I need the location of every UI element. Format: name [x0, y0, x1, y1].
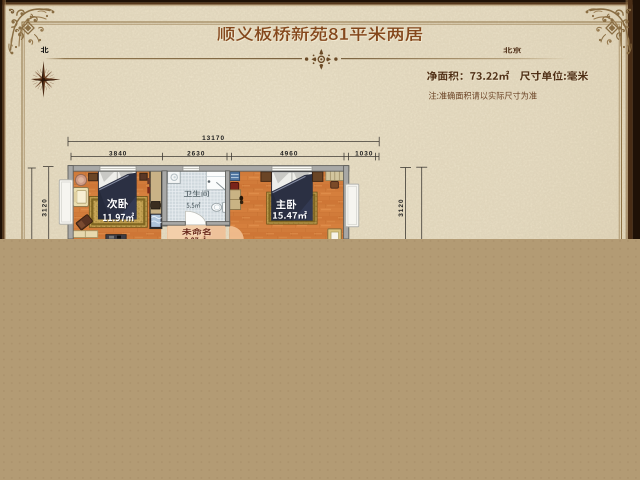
svg-text:3840: 3840: [109, 151, 127, 158]
svg-text:3120: 3120: [41, 198, 48, 216]
svg-text:2630: 2630: [187, 151, 205, 158]
svg-text:3120: 3120: [398, 198, 405, 216]
svg-text:1030: 1030: [355, 151, 373, 158]
svg-text:4960: 4960: [280, 151, 298, 158]
svg-text:13170: 13170: [202, 135, 225, 142]
